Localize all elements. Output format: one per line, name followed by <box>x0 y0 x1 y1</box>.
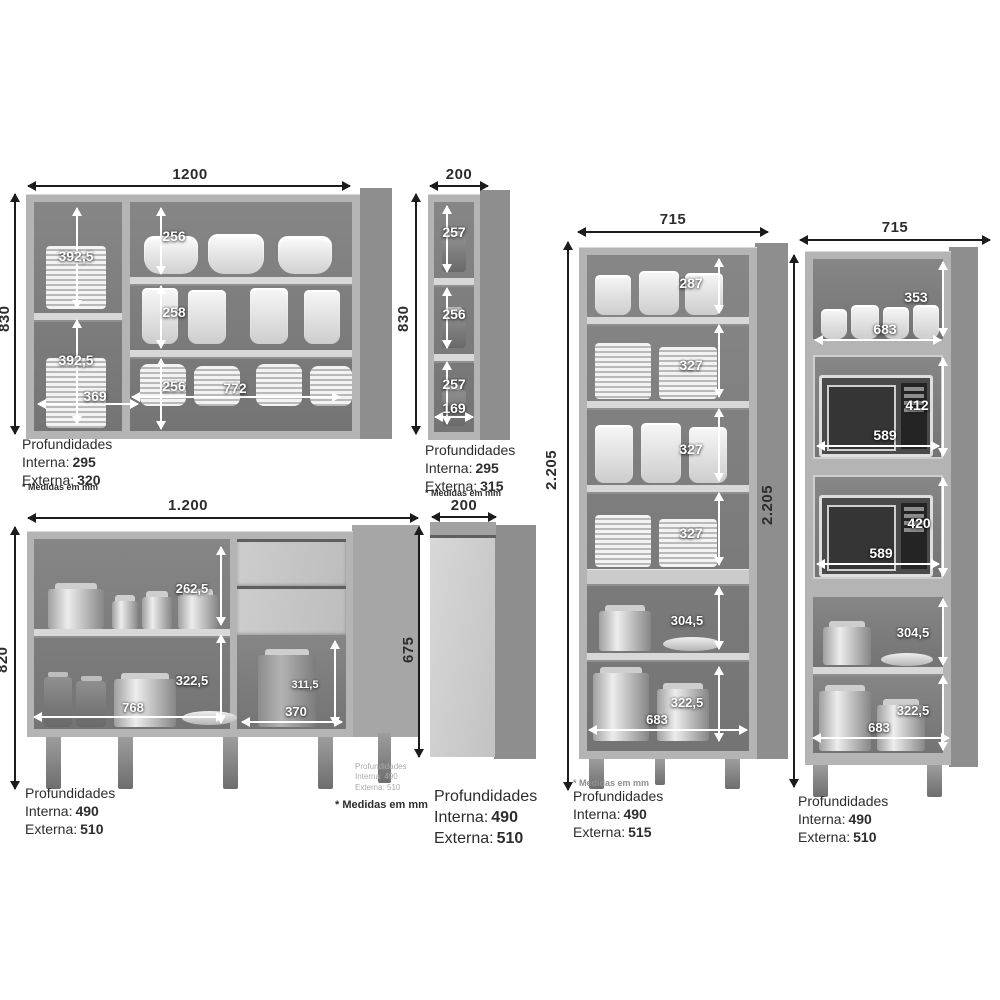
width-dim-label: 715 <box>825 219 965 236</box>
shelf <box>587 653 749 662</box>
cup <box>595 275 631 315</box>
kitchen-cabinet-dimension-diagram: 1200 830 392,5 392,5 369 256 258 <box>0 0 1000 1000</box>
canister <box>44 677 72 727</box>
depths-internal: Interna: 490 <box>355 772 407 782</box>
inner-dim-label: 683 <box>849 720 909 735</box>
depths-external-label: Externa: <box>798 829 850 845</box>
wall-cabinet-narrow: 200 830 257 256 257 169 Profundidades In… <box>405 166 535 496</box>
shelf <box>813 667 943 676</box>
bowl <box>278 236 332 274</box>
inner-dim-arrow <box>242 721 342 723</box>
width-dim-arrow <box>578 231 768 233</box>
inner-dim-label: 257 <box>424 376 484 392</box>
depths-title: Profundidades <box>434 787 537 808</box>
cabinet-leg <box>118 737 133 789</box>
depths-external: Externa: 510 <box>355 783 407 793</box>
inner-dim-label: 683 <box>855 321 915 337</box>
wall-cabinet-wide: 1200 830 392,5 392,5 369 256 258 <box>20 166 395 496</box>
shelf <box>587 317 749 326</box>
depths-internal-value: 490 <box>623 806 646 822</box>
depths-block: Profundidades Interna:490 Externa:515 <box>573 788 663 842</box>
cup <box>913 305 939 339</box>
inner-dim-arrow <box>589 729 747 731</box>
depths-internal: Interna:490 <box>798 811 888 829</box>
inner-dim-label: 262,5 <box>164 581 220 596</box>
inner-dim-label: 322,5 <box>164 673 220 688</box>
inner-dim-arrow <box>942 262 944 336</box>
inner-dim-arrow <box>817 445 939 447</box>
depths-external-value: 510 <box>497 830 524 847</box>
inner-dim-label: 589 <box>851 545 911 561</box>
width-dim-arrow <box>430 185 488 187</box>
drawer-bottom <box>237 586 346 636</box>
bowl-stack <box>310 366 352 406</box>
inner-dim-label: 768 <box>103 700 163 715</box>
width-dim-label: 715 <box>583 211 763 228</box>
inner-dim-label: 256 <box>144 228 204 244</box>
depths-internal: Interna:295 <box>22 454 112 472</box>
cabinet-top-rail <box>430 522 496 538</box>
height-dim-label: 2.205 <box>543 435 563 505</box>
inner-dim-arrow <box>160 359 162 429</box>
inner-dim-label: 304,5 <box>659 613 715 628</box>
depths-internal-value: 490 <box>75 803 98 819</box>
plate-stack <box>659 347 717 399</box>
depths-external-value: 510 <box>853 829 876 845</box>
microwave-door <box>827 505 896 571</box>
inner-dim-label: 353 <box>893 289 939 305</box>
depths-title: Profundidades <box>798 793 888 811</box>
width-dim-label: 1200 <box>30 166 350 183</box>
inner-dim-arrow <box>817 563 939 565</box>
small-pot <box>178 595 218 629</box>
inner-dim-arrow <box>34 716 224 718</box>
inner-dim-arrow <box>718 259 720 313</box>
inner-dim-label: 683 <box>627 712 687 727</box>
inner-dim-arrow <box>718 325 720 397</box>
depths-internal: Interna:490 <box>434 808 537 829</box>
height-dim-label: 675 <box>400 615 420 685</box>
cabinet-side-panel <box>949 247 978 767</box>
depths-internal-label: Interna: <box>425 460 472 476</box>
tall-cabinet-oven: 715 2.205 <box>785 205 1000 865</box>
microwave-button <box>904 387 924 391</box>
inner-dim-label: 412 <box>895 397 939 413</box>
small-pot <box>112 601 138 629</box>
shelf <box>434 354 474 363</box>
depths-internal-value: 295 <box>72 454 95 470</box>
height-dim-label: 830 <box>395 284 415 354</box>
inner-dim-label: 370 <box>266 704 326 719</box>
depths-block-faint: Profundidades Interna: 490 Externa: 510 <box>355 762 407 793</box>
inner-dim-label: 369 <box>60 388 130 404</box>
height-dim-label: 830 <box>0 284 16 354</box>
inner-dim-arrow <box>942 358 944 456</box>
shelf <box>587 485 749 494</box>
cabinet-leg <box>927 765 942 797</box>
cup <box>821 309 847 339</box>
inner-dim-arrow <box>815 339 941 341</box>
tray <box>182 711 237 725</box>
inner-dim-arrow <box>220 635 222 723</box>
inner-dim-label: 287 <box>667 275 715 291</box>
cooking-pot <box>823 627 871 665</box>
height-dim-arrow <box>567 242 569 790</box>
tray <box>881 653 933 666</box>
units-note: * Medidas em mm <box>22 482 98 492</box>
depths-external: Externa:515 <box>573 824 663 842</box>
depths-external-label: Externa: <box>573 824 625 840</box>
inner-dim-arrow <box>132 396 340 398</box>
depths-external: Externa:510 <box>25 821 115 839</box>
depths-internal-label: Interna: <box>573 806 620 822</box>
width-dim-arrow <box>800 239 990 241</box>
inner-dim-arrow <box>76 320 78 424</box>
width-dim-arrow <box>28 517 418 519</box>
height-dim-arrow <box>415 194 417 434</box>
microwave-button <box>904 507 924 511</box>
inner-dim-arrow <box>718 587 720 649</box>
shelf <box>34 629 230 638</box>
base-cabinet-wide: 1.200 820 262,5 322,5 768 311,5 370 <box>18 495 443 840</box>
inner-dim-label: 258 <box>144 304 204 320</box>
divider-shelf <box>587 569 749 586</box>
units-note: * Medidas em mm <box>335 799 428 811</box>
canister <box>250 288 288 344</box>
depths-block: Profundidades Interna:490 Externa:510 <box>798 793 888 847</box>
depths-block: Profundidades Interna:490 Externa:510 <box>434 787 537 849</box>
inner-dim-label: 169 <box>424 400 484 416</box>
inner-dim-arrow <box>942 478 944 576</box>
inner-dim-label: 589 <box>855 427 915 443</box>
depths-external: Externa:510 <box>798 829 888 847</box>
depths-title: Profundidades <box>22 436 112 454</box>
height-dim-arrow <box>793 255 795 787</box>
canister <box>304 290 340 344</box>
inner-dim-arrow <box>220 547 222 625</box>
depths-internal: Interna:295 <box>425 460 515 478</box>
small-pot <box>142 597 172 629</box>
depths-external: Externa:510 <box>434 829 537 850</box>
inner-dim-arrow <box>435 416 473 418</box>
shelf <box>434 278 474 287</box>
inner-dim-label: 327 <box>667 525 715 541</box>
height-dim-arrow <box>14 527 16 789</box>
cabinet-leg <box>655 759 665 785</box>
inner-dim-label: 256 <box>424 306 484 322</box>
inner-dim-arrow <box>718 493 720 565</box>
depths-title: Profundidades <box>425 442 515 460</box>
inner-dim-arrow <box>942 599 944 665</box>
inner-dim-label: 256 <box>144 378 204 394</box>
cabinet-door <box>430 538 495 757</box>
height-dim-label: 2.205 <box>759 470 779 540</box>
shelf <box>587 401 749 410</box>
depths-internal: Interna:490 <box>573 806 663 824</box>
width-dim-arrow <box>432 516 496 518</box>
inner-dim-label: 257 <box>424 224 484 240</box>
depths-external-value: 515 <box>628 824 651 840</box>
inner-dim-label: 392,5 <box>28 248 124 264</box>
width-dim-label: 200 <box>424 497 504 514</box>
inner-dim-label: 322,5 <box>659 695 715 710</box>
depths-title: Profundidades <box>25 785 115 803</box>
depths-title: Profundidades <box>573 788 663 806</box>
inner-dim-arrow <box>334 641 336 725</box>
width-dim-label: 200 <box>424 166 494 183</box>
cabinet-leg <box>318 737 333 789</box>
units-note: * Medidas em mm <box>573 778 649 788</box>
depths-block: Profundidades Interna:490 Externa:510 <box>25 785 115 839</box>
drawer-top <box>237 539 346 587</box>
cabinet-side-panel <box>494 525 536 759</box>
depths-internal-value: 295 <box>475 460 498 476</box>
inner-dim-label: 322,5 <box>885 703 941 718</box>
depths-external-label: Externa: <box>434 830 494 847</box>
height-dim-label: 820 <box>0 625 14 695</box>
cooking-pot <box>48 589 104 629</box>
depths-internal-label: Interna: <box>798 811 845 827</box>
tray <box>663 637 721 651</box>
depths-internal-label: Interna: <box>434 809 488 826</box>
depths-internal-label: Interna: <box>22 454 69 470</box>
canister <box>76 681 106 727</box>
cabinet-leg <box>46 737 61 789</box>
inner-dim-label: 420 <box>897 515 941 531</box>
depths-title: Profundidades <box>355 762 407 772</box>
cooking-pot <box>599 611 651 651</box>
inner-dim-arrow <box>718 409 720 481</box>
depths-internal-value: 490 <box>848 811 871 827</box>
width-dim-arrow <box>28 185 350 187</box>
cup <box>595 425 633 483</box>
inner-dim-label: 304,5 <box>885 625 941 640</box>
inner-dim-label: 327 <box>667 441 715 457</box>
inner-dim-label: 392,5 <box>28 352 124 368</box>
depths-external-value: 510 <box>80 821 103 837</box>
depths-external-label: Externa: <box>25 821 77 837</box>
inner-dim-label: 327 <box>667 357 715 373</box>
inner-dim-label: 772 <box>200 380 270 396</box>
depths-internal-label: Interna: <box>25 803 72 819</box>
cabinet-leg <box>223 737 238 789</box>
inner-dim-arrow <box>813 737 949 739</box>
cabinet-leg <box>725 759 740 789</box>
base-cabinet-narrow: 200 675 Profundidades Interna:490 Extern… <box>420 495 560 840</box>
cabinet-side-panel <box>480 190 510 440</box>
inner-dim-label: 311,5 <box>280 679 330 691</box>
depths-internal-value: 490 <box>491 809 518 826</box>
width-dim-label: 1.200 <box>38 497 338 514</box>
depths-internal: Interna:490 <box>25 803 115 821</box>
plate-stack <box>595 515 651 567</box>
cabinet-side-panel <box>360 188 392 439</box>
plate-stack <box>595 343 651 399</box>
bowl <box>208 234 264 274</box>
